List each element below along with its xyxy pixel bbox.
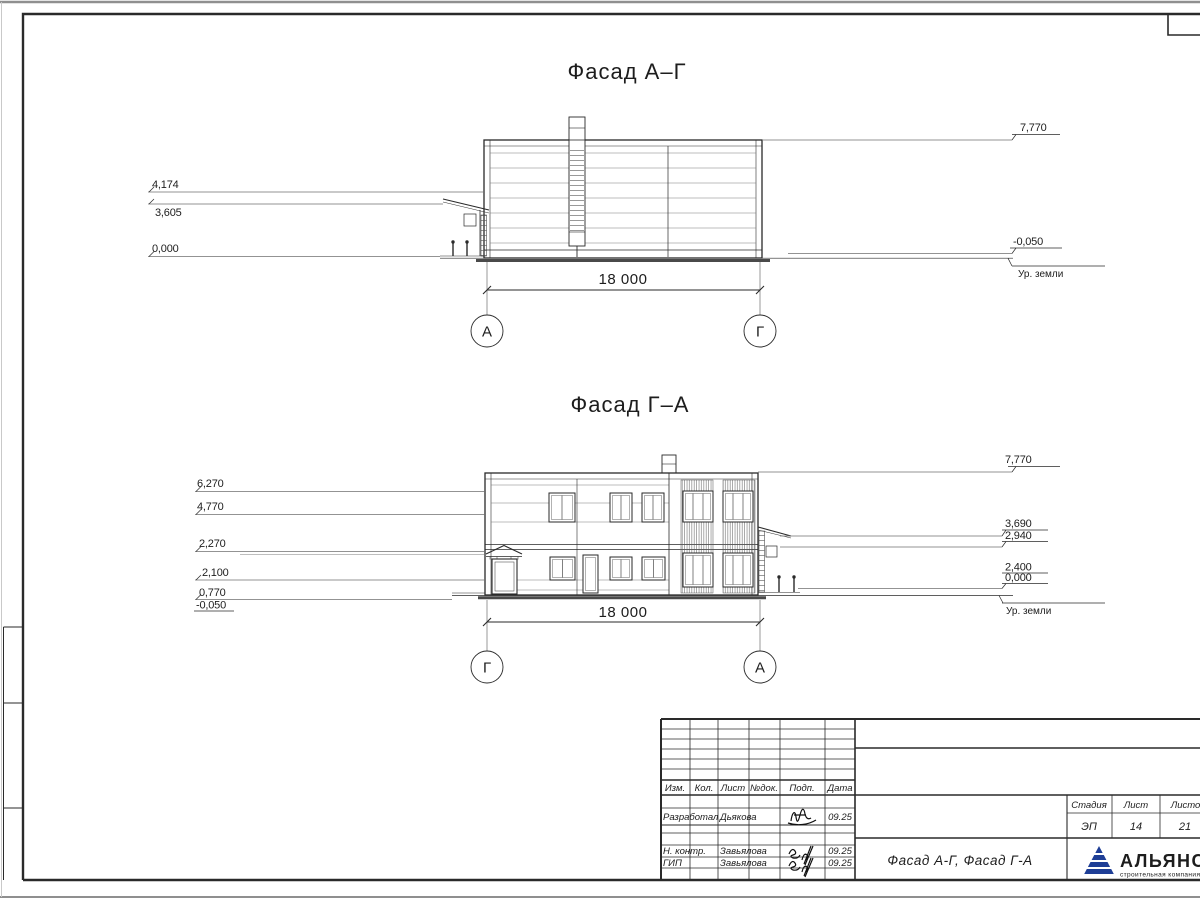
facade-top-building [484, 140, 762, 258]
tb-role: Разработал [663, 812, 719, 823]
window [683, 491, 713, 522]
tb-col-kol: Кол. [695, 783, 714, 794]
pyramid-logo-icon [1084, 846, 1114, 874]
facade-top-drawing: Фасад А–Г [148, 59, 1105, 347]
sheets-header: Листов [1170, 800, 1200, 811]
facade-top-axis-right: Г [744, 315, 776, 347]
annex-ladder [759, 531, 765, 592]
upper-floor-windows [549, 491, 753, 522]
facade-drawing-canvas: Фасад А–Г [0, 0, 1200, 900]
sheets-total: 21 [1178, 821, 1191, 833]
elevation-label: 0,770 [199, 587, 226, 599]
tb-col-ndok: №док. [750, 783, 778, 794]
facade-top-porch [440, 199, 489, 256]
elevation-label: 7,770 [1020, 122, 1047, 134]
title-block: Изм. Кол. Лист №док. Подп. Дата Разработ… [661, 719, 1200, 880]
porch-box [464, 214, 476, 226]
window [723, 491, 753, 522]
tb-date: 09.25 [828, 812, 852, 823]
bollards [451, 240, 468, 256]
facade-bottom-left-elevations [194, 487, 485, 612]
format-box [1168, 14, 1200, 35]
ground-floor-openings [486, 546, 753, 595]
siding-lines [490, 153, 756, 243]
stage-header: Стадия [1071, 800, 1107, 811]
porch-ladder [481, 215, 487, 256]
facade-bottom-drawing: Фасад Г–А [194, 392, 1105, 683]
elevation-label: 6,270 [197, 478, 224, 490]
elevation-label: 3,690 [1005, 518, 1032, 530]
elevation-label: 4,174 [152, 179, 179, 191]
logo-company-name: АЛЬЯНС [1120, 851, 1200, 871]
elevation-label: 0,000 [1005, 572, 1032, 584]
stage-value: ЭП [1081, 821, 1097, 833]
elevation-label: 2,270 [199, 538, 226, 550]
tb-name: Завьялова [720, 858, 767, 869]
elevation-label: 2,940 [1005, 530, 1032, 542]
window [642, 493, 664, 522]
tb-col-podp: Подп. [789, 783, 814, 794]
bollards [777, 575, 795, 592]
facade-bottom-right-elevations [758, 467, 1105, 604]
document-title: Фасад А-Г, Фасад Г-А [887, 853, 1032, 868]
entrance-door [486, 546, 522, 595]
elevation-label: -0,050 [196, 600, 226, 612]
axis-letter: Г [756, 324, 764, 341]
span-dimension-text: 18 000 [599, 271, 648, 288]
elevation-label: 7,770 [1005, 454, 1032, 466]
facade-top-axis-left: А [471, 315, 503, 347]
drawing-sheet: Фасад А–Г [0, 0, 1200, 900]
facade-bottom-title: Фасад Г–А [571, 392, 690, 417]
axis-letter: А [482, 324, 492, 341]
window [642, 557, 665, 580]
facade-top-chimney [569, 117, 585, 257]
door [583, 555, 598, 593]
elevation-label: 4,770 [197, 501, 224, 513]
sheet-frame [0, 2, 1200, 897]
facade-top-left-elevations [148, 187, 484, 257]
tb-date: 09.25 [828, 846, 852, 857]
company-logo: АЛЬЯНС строительная компания [1084, 846, 1200, 879]
tb-date: 09.25 [828, 858, 852, 869]
elevation-label: -0,050 [1013, 236, 1043, 248]
annex-box [766, 546, 777, 557]
span-dimension-text: 18 000 [599, 604, 648, 621]
facade-bottom-axis-left: Г [471, 651, 503, 683]
tb-col-data: Дата [826, 783, 852, 794]
ground-level-label: Ур. земли [1006, 606, 1051, 617]
tb-name: Завьялова [720, 846, 767, 857]
sheet-header: Лист [1123, 800, 1149, 811]
window [610, 493, 632, 522]
signature-gip [789, 858, 813, 877]
facade-bottom-axis-right: А [744, 651, 776, 683]
window [610, 557, 632, 580]
axis-letter: А [755, 660, 765, 677]
tb-role: Н. контр. [663, 846, 706, 857]
tb-name: Дьякова [719, 812, 757, 823]
facade-top-title: Фасад А–Г [568, 59, 687, 84]
window [550, 557, 575, 580]
window [683, 553, 713, 587]
left-margin-cells [4, 627, 24, 880]
logo-tagline: строительная компания [1120, 872, 1200, 879]
tb-row-gip: ГИП Завьялова 09.25 [663, 858, 853, 877]
ground-level-label: Ур. земли [1018, 269, 1063, 280]
signature-developer [788, 809, 816, 824]
axis-letter: Г [483, 660, 491, 677]
window [549, 493, 575, 522]
facade-top-ground [440, 258, 1013, 260]
tb-role: ГИП [663, 858, 682, 869]
facade-top-span-dimension [483, 262, 764, 315]
facade-bottom-annex [758, 527, 800, 593]
elevation-label: 3,605 [155, 207, 182, 219]
tb-col-list: Лист [720, 783, 746, 794]
window [723, 553, 753, 587]
elevation-label: 2,100 [202, 567, 229, 579]
elevation-label: 0,000 [152, 243, 179, 255]
facade-top-right-elevations [762, 135, 1105, 267]
facade-bottom-ground [452, 593, 1013, 598]
tb-col-izm: Изм. [665, 783, 685, 794]
tb-row-developer: Разработал Дьякова 09.25 [663, 809, 853, 824]
sheet-number: 14 [1130, 821, 1142, 833]
